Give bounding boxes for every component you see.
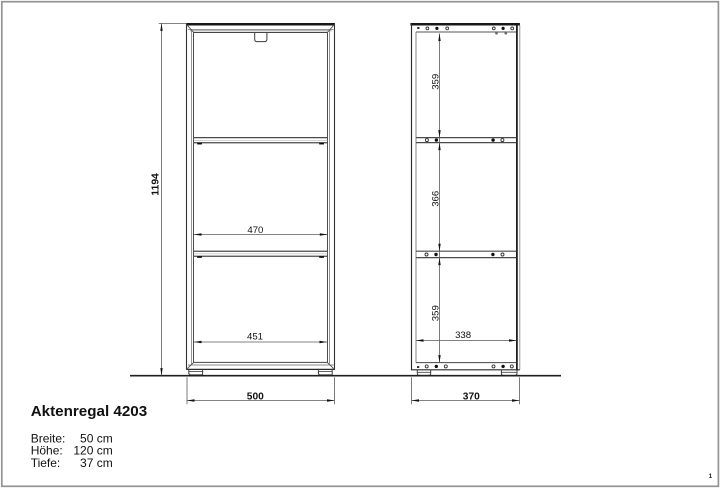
svg-text:1194: 1194 bbox=[150, 173, 161, 196]
svg-text:Tiefe:: Tiefe: bbox=[31, 456, 61, 470]
svg-text:1: 1 bbox=[709, 473, 713, 480]
svg-text:359: 359 bbox=[431, 74, 442, 90]
svg-text:Aktenregal 4203: Aktenregal 4203 bbox=[31, 403, 148, 420]
svg-text:338: 338 bbox=[455, 330, 471, 341]
svg-text:451: 451 bbox=[247, 332, 263, 343]
svg-text:37: 37 bbox=[80, 456, 94, 470]
svg-text:500: 500 bbox=[247, 391, 264, 402]
svg-text:cm: cm bbox=[97, 456, 113, 470]
svg-text:359: 359 bbox=[430, 305, 441, 321]
svg-text:470: 470 bbox=[247, 225, 263, 236]
svg-text:370: 370 bbox=[463, 391, 480, 402]
svg-text:366: 366 bbox=[430, 191, 441, 207]
